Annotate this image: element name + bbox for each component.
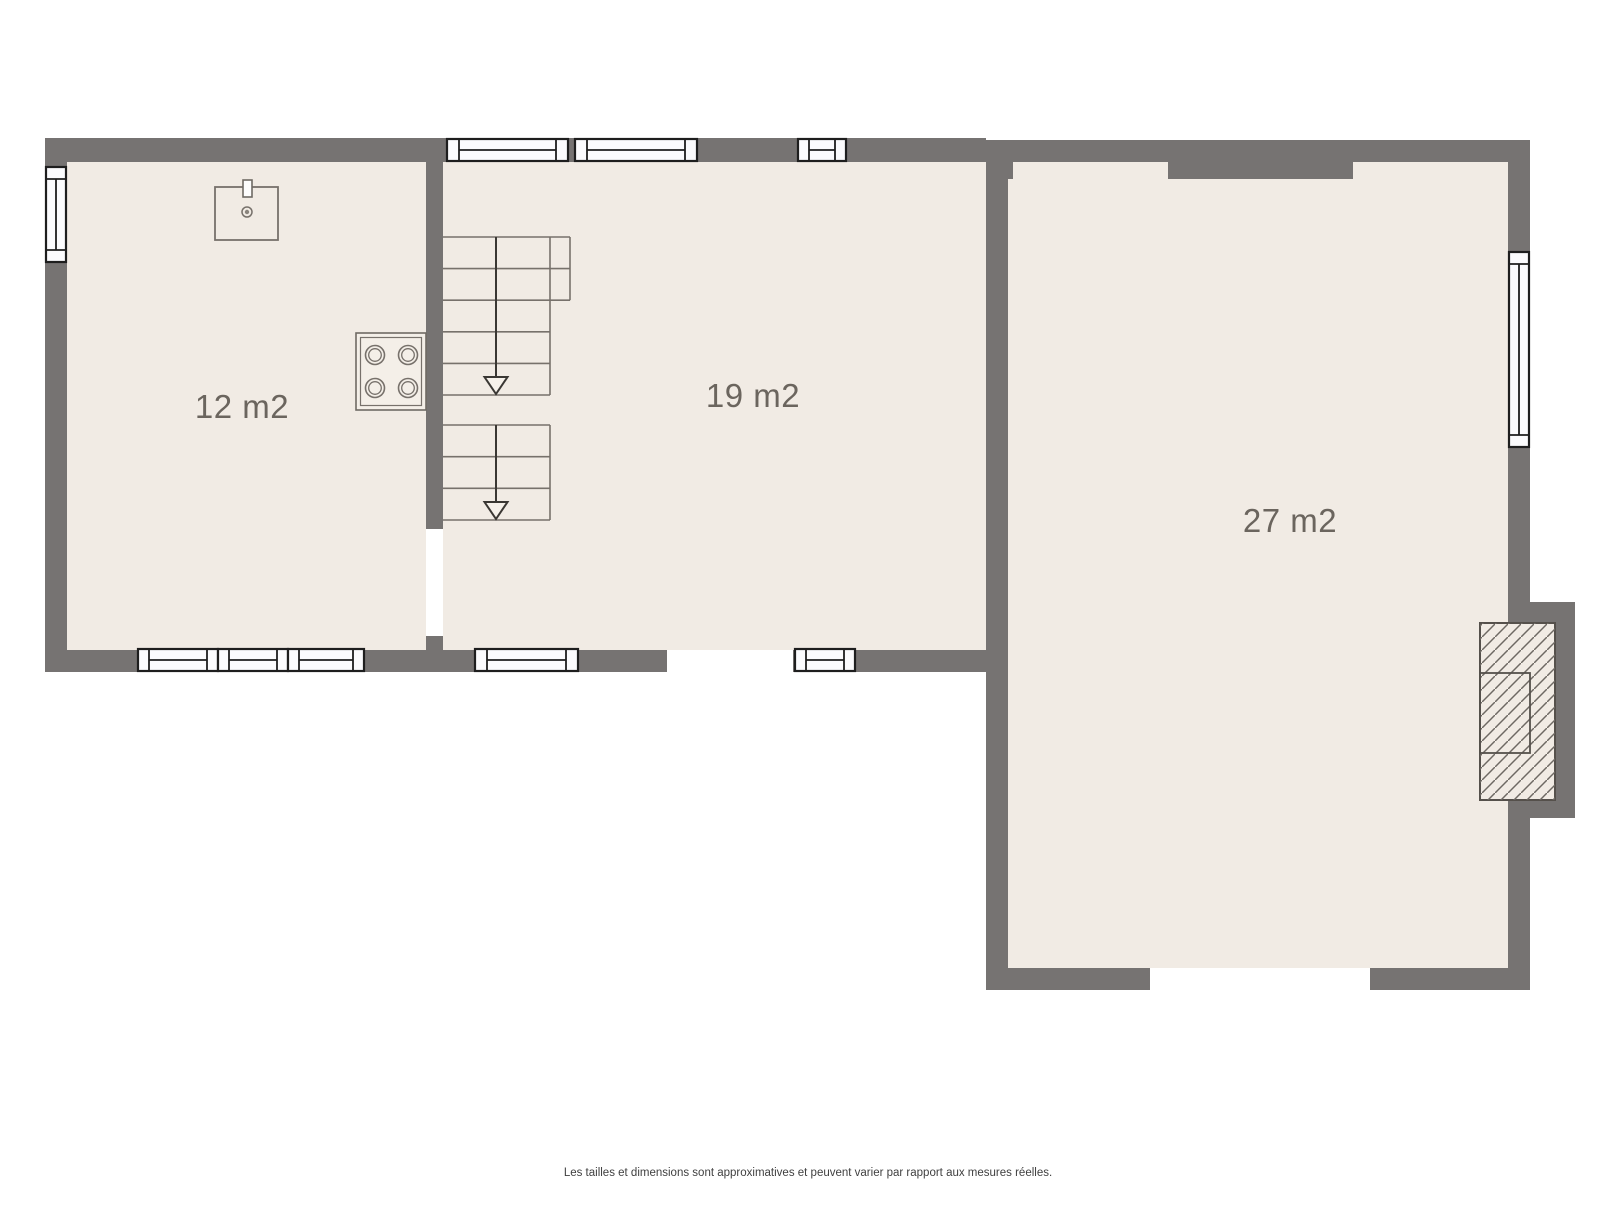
window-symbol <box>138 649 218 671</box>
window-symbol <box>46 167 66 262</box>
wall-partition-kitchen-stub <box>426 636 443 652</box>
stove-icon <box>356 333 426 410</box>
window-symbol <box>798 139 846 161</box>
window-symbol <box>475 649 578 671</box>
window-symbol <box>1509 252 1529 447</box>
room-3-floor <box>1008 162 1508 968</box>
floor-plan-svg: 12 m2 19 m2 27 m2 Les tailles et dimensi… <box>0 0 1620 1215</box>
floor-plan-page: 12 m2 19 m2 27 m2 Les tailles et dimensi… <box>0 0 1620 1215</box>
wall-top-right-thick-left <box>986 162 1013 179</box>
window-symbol <box>288 649 364 671</box>
window-symbol <box>575 139 697 161</box>
window-symbol <box>218 649 288 671</box>
door-opening-kitchen <box>426 529 443 636</box>
wall-top-right <box>986 140 1530 162</box>
door-opening-bottom-right <box>1150 968 1370 990</box>
room-area-label: 19 m2 <box>706 377 800 414</box>
disclaimer-text: Les tailles et dimensions sont approxima… <box>564 1167 1052 1179</box>
window-symbol <box>795 649 855 671</box>
wall-partition-kitchen-upper <box>426 162 443 529</box>
wall-partition-middle-right <box>986 140 1008 990</box>
sink-faucet <box>243 180 252 197</box>
fireplace-icon <box>1480 623 1555 800</box>
door-opening-bottom-middle <box>667 650 793 672</box>
wall-top-right-thick-mid <box>1168 162 1353 179</box>
wall-chimney-right <box>1553 602 1575 818</box>
room-area-label: 12 m2 <box>195 388 289 425</box>
room-floors <box>67 162 1508 968</box>
window-symbol <box>447 139 568 161</box>
room-area-label: 27 m2 <box>1243 502 1337 539</box>
